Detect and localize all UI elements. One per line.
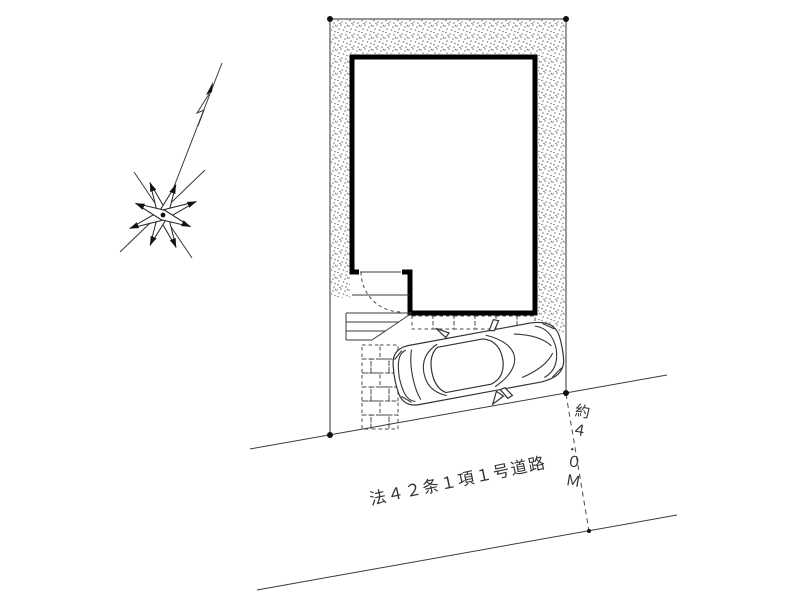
entrance-door-arc [361,272,401,312]
road-name-label: 法４２条１項１号道路 [368,453,548,509]
car-antenna-mark [436,326,450,339]
road-width-label: 約 ４ ． ０ Ｍ [562,402,596,492]
site-plan-drawing: 法４２条１項１号道路 約 ４ ． ０ Ｍ [0,0,800,600]
road-width-char: Ｍ [564,471,582,491]
road-edge-lower [257,515,677,590]
road-width-char: 約 [574,402,592,422]
road-width-char: ０ [565,452,583,472]
building-footprint [352,57,535,313]
car-top-view [387,306,570,421]
entrance-steps [346,295,412,340]
site-plan-page: 法４２条１項１号道路 約 ４ ． ０ Ｍ [0,0,800,600]
north-arrow-icon [120,63,222,258]
